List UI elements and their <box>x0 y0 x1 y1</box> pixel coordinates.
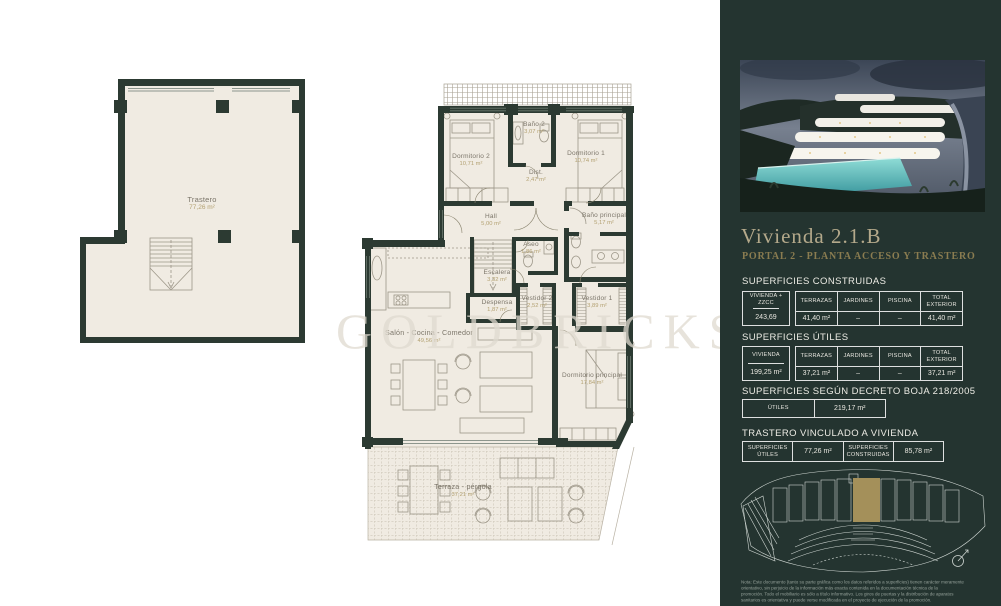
table-cell: SUPERFICIES ÚTILES <box>743 442 792 461</box>
section-heading-utiles: SUPERFICIES ÚTILES <box>742 332 848 343</box>
table-cell: 41,40 m² <box>796 312 837 325</box>
room-label-aseo: Aseo1,86 m² <box>511 241 551 256</box>
room-label-dormitorio-principal: Dormitorio principal17,84 m² <box>542 372 642 387</box>
building-photo <box>740 60 985 212</box>
section-heading-construidas: SUPERFICIES CONSTRUIDAS <box>742 276 886 287</box>
table-cell: JARDINES <box>837 347 879 366</box>
table-cell: 41,40 m² <box>920 312 962 325</box>
table-boja: ÚTILES 219,17 m² <box>742 399 886 418</box>
table-cell: PISCINA <box>879 347 921 366</box>
table-cell: ÚTILES <box>743 400 814 417</box>
section-heading-trastero: TRASTERO VINCULADO A VIVIENDA <box>742 428 918 439</box>
goldbricks-watermark: GOLDBRICKS <box>336 302 745 360</box>
table-cell: 85,78 m² <box>893 442 943 461</box>
table-trastero: SUPERFICIES ÚTILES 77,26 m² SUPERFICIES … <box>742 441 944 462</box>
room-label-dormitorio-1: Dormitorio 110,74 m² <box>546 150 626 165</box>
table-cell: 243,69 <box>753 308 778 325</box>
room-label-dist: Dist.2,47 m² <box>516 169 556 184</box>
room-label-bano-2: Baño 23,07 m² <box>504 121 564 136</box>
table-cell: TOTAL EXTERIOR <box>920 292 962 311</box>
unit-subtitle: PORTAL 2 - PLANTA ACCESO Y TRASTERO <box>742 251 976 262</box>
section-heading-boja: SUPERFICIES SEGÚN DECRETO BOJA 218/2005 <box>742 386 975 397</box>
table-cell: TERRAZAS <box>796 347 837 366</box>
table-utiles: VIVIENDA 199,25 m² TERRAZAS JARDINES PIS… <box>742 346 963 381</box>
table-cell: 77,26 m² <box>792 442 842 461</box>
table-cell: VIVIENDA + ZZCC <box>743 292 789 308</box>
north-arrow-icon <box>953 550 969 567</box>
room-label-dormitorio-2: Dormitorio 210,71 m² <box>431 153 511 168</box>
room-label-hall: Hall5,00 m² <box>461 213 521 228</box>
table-cell: 199,25 m² <box>748 363 784 380</box>
table-cell: – <box>879 312 921 325</box>
table-cell: TERRAZAS <box>796 292 837 311</box>
room-label-trastero: Trastero 77,26 m² <box>162 195 242 212</box>
table-cell: VIVIENDA <box>750 347 782 363</box>
table-construidas: VIVIENDA + ZZCC 243,69 TERRAZAS JARDINES… <box>742 291 963 326</box>
info-panel: Vivienda 2.1.B PORTAL 2 - PLANTA ACCESO … <box>720 0 1001 606</box>
table-cell: – <box>879 367 921 380</box>
table-cell: JARDINES <box>837 292 879 311</box>
room-label-escalera: Escalera3,32 m² <box>467 269 527 284</box>
table-cell: SUPERFICIES CONSTRUIDAS <box>843 442 893 461</box>
table-cell: TOTAL EXTERIOR <box>920 347 962 366</box>
room-label-terraza-pergola: Terraza - pérgola37,21 m² <box>413 483 513 499</box>
table-cell: 37,21 m² <box>920 367 962 380</box>
unit-title: Vivienda 2.1.B <box>741 224 881 249</box>
room-label-bano-principal: Baño principal5,17 m² <box>564 212 644 227</box>
site-plan <box>733 466 993 581</box>
table-cell: PISCINA <box>879 292 921 311</box>
highlighted-unit <box>853 478 880 522</box>
legal-note: Nota: Este documento (tanto su parte grá… <box>741 579 996 603</box>
table-cell: – <box>837 367 879 380</box>
table-cell: 219,17 m² <box>814 400 886 417</box>
table-cell: 37,21 m² <box>796 367 837 380</box>
table-cell: – <box>837 312 879 325</box>
